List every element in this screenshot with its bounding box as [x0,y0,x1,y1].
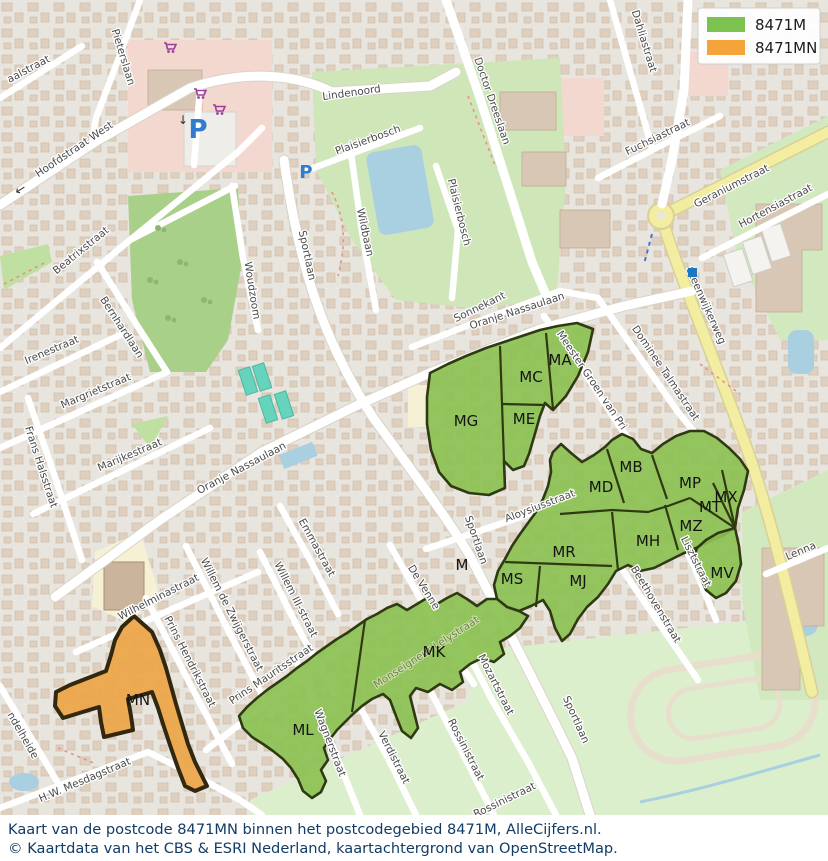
one-way-arrow-icon: ↓ [178,113,188,127]
legend-swatch-8471mn [707,40,745,55]
region-label-mb: MB [619,458,642,476]
region-label-mh: MH [636,532,660,550]
caption-line2: © Kaartdata van het CBS & ESRI Nederland… [8,839,828,858]
caption-line1: Kaart van de postcode 8471MN binnen het … [8,820,828,839]
region-label-md: MD [589,478,614,496]
pond [9,773,39,791]
region-label-mk: MK [423,643,447,661]
region-label-mr: MR [552,543,575,561]
region-label-mv: MV [710,564,734,582]
bus-stop-icon [688,268,697,277]
pond [788,330,814,374]
page: aalstraat Pieterslaan Hoofdstraat West L… [0,0,828,861]
region-label-mj: MJ [569,572,586,590]
caption: Kaart van de postcode 8471MN binnen het … [0,815,828,861]
region-label-mz: MZ [679,517,702,535]
park [128,188,242,372]
region-label-mc: MC [519,368,542,386]
legend-label-8471m: 8471M [755,16,806,34]
map-canvas[interactable]: aalstraat Pieterslaan Hoofdstraat West L… [0,0,828,815]
parking-icon: P [299,162,312,183]
region-label-m: M [456,556,469,574]
region-label-mp: MP [679,474,701,492]
region-label-me: ME [513,410,535,428]
legend: 8471M 8471MN [698,8,820,64]
legend-swatch-8471m [707,17,745,32]
region-label-mn: MN [126,691,150,709]
region-label-mt: MT [699,498,722,516]
legend-label-8471mn: 8471MN [755,39,817,57]
region-label-mg: MG [454,412,479,430]
region-label-ms: MS [501,570,523,588]
region-label-ma: MA [548,351,572,369]
region-label-ml: ML [292,721,314,739]
parking-icon: P [188,115,207,145]
